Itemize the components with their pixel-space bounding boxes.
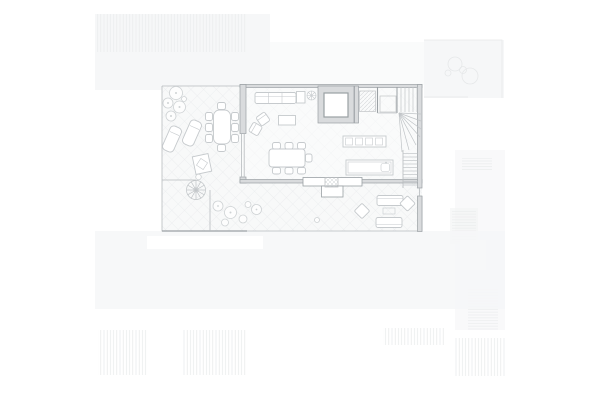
shrub	[182, 97, 187, 102]
context-terrace-top-right	[424, 40, 504, 98]
dining-table	[269, 149, 305, 167]
context-roof-hatch-top-left	[95, 14, 247, 52]
terrace-chair	[206, 124, 213, 132]
kitchen-counter	[343, 136, 386, 147]
wall-left-upper	[240, 85, 246, 134]
shaft-hatch	[360, 91, 376, 112]
terrace-chair	[232, 113, 239, 121]
floor-plan-drawing	[0, 0, 600, 400]
terrace-chair	[232, 135, 239, 143]
door-mat	[325, 178, 338, 188]
terrace-dining-table	[214, 110, 231, 144]
terrace-chair	[206, 113, 213, 121]
shrub	[196, 174, 202, 180]
porch-step	[322, 186, 344, 197]
shrub	[239, 215, 247, 223]
dining-chair	[285, 168, 293, 175]
side-table	[297, 92, 306, 104]
kitchen-island	[346, 160, 393, 175]
context-buildings-bottom	[95, 231, 505, 376]
shrub	[222, 219, 229, 226]
outdoor-sofa	[376, 218, 402, 228]
dining-chair	[298, 168, 306, 175]
faucet	[385, 162, 387, 164]
dining-chair	[273, 143, 281, 150]
dining-chair	[306, 154, 313, 162]
dining-chair	[298, 143, 306, 150]
coffee-table	[279, 116, 296, 126]
skylight-opening	[324, 93, 348, 117]
terrace-chair	[232, 124, 239, 132]
terrace-chair	[218, 103, 226, 110]
wall-right-lower	[418, 196, 423, 232]
planter-stand	[192, 154, 211, 175]
shrub	[315, 218, 320, 223]
sofa	[255, 93, 296, 104]
potted-plant	[307, 91, 316, 100]
terrace-chair	[218, 145, 226, 152]
floor-plan-canvas	[0, 0, 600, 400]
dining-chair	[273, 168, 281, 175]
context-area-top-center	[270, 42, 424, 85]
dining-area	[269, 143, 312, 175]
shrub	[245, 202, 251, 208]
dining-chair	[285, 143, 293, 150]
skylight-box	[318, 86, 354, 123]
outdoor-sofa	[377, 196, 403, 206]
terrace-chair	[206, 135, 213, 143]
